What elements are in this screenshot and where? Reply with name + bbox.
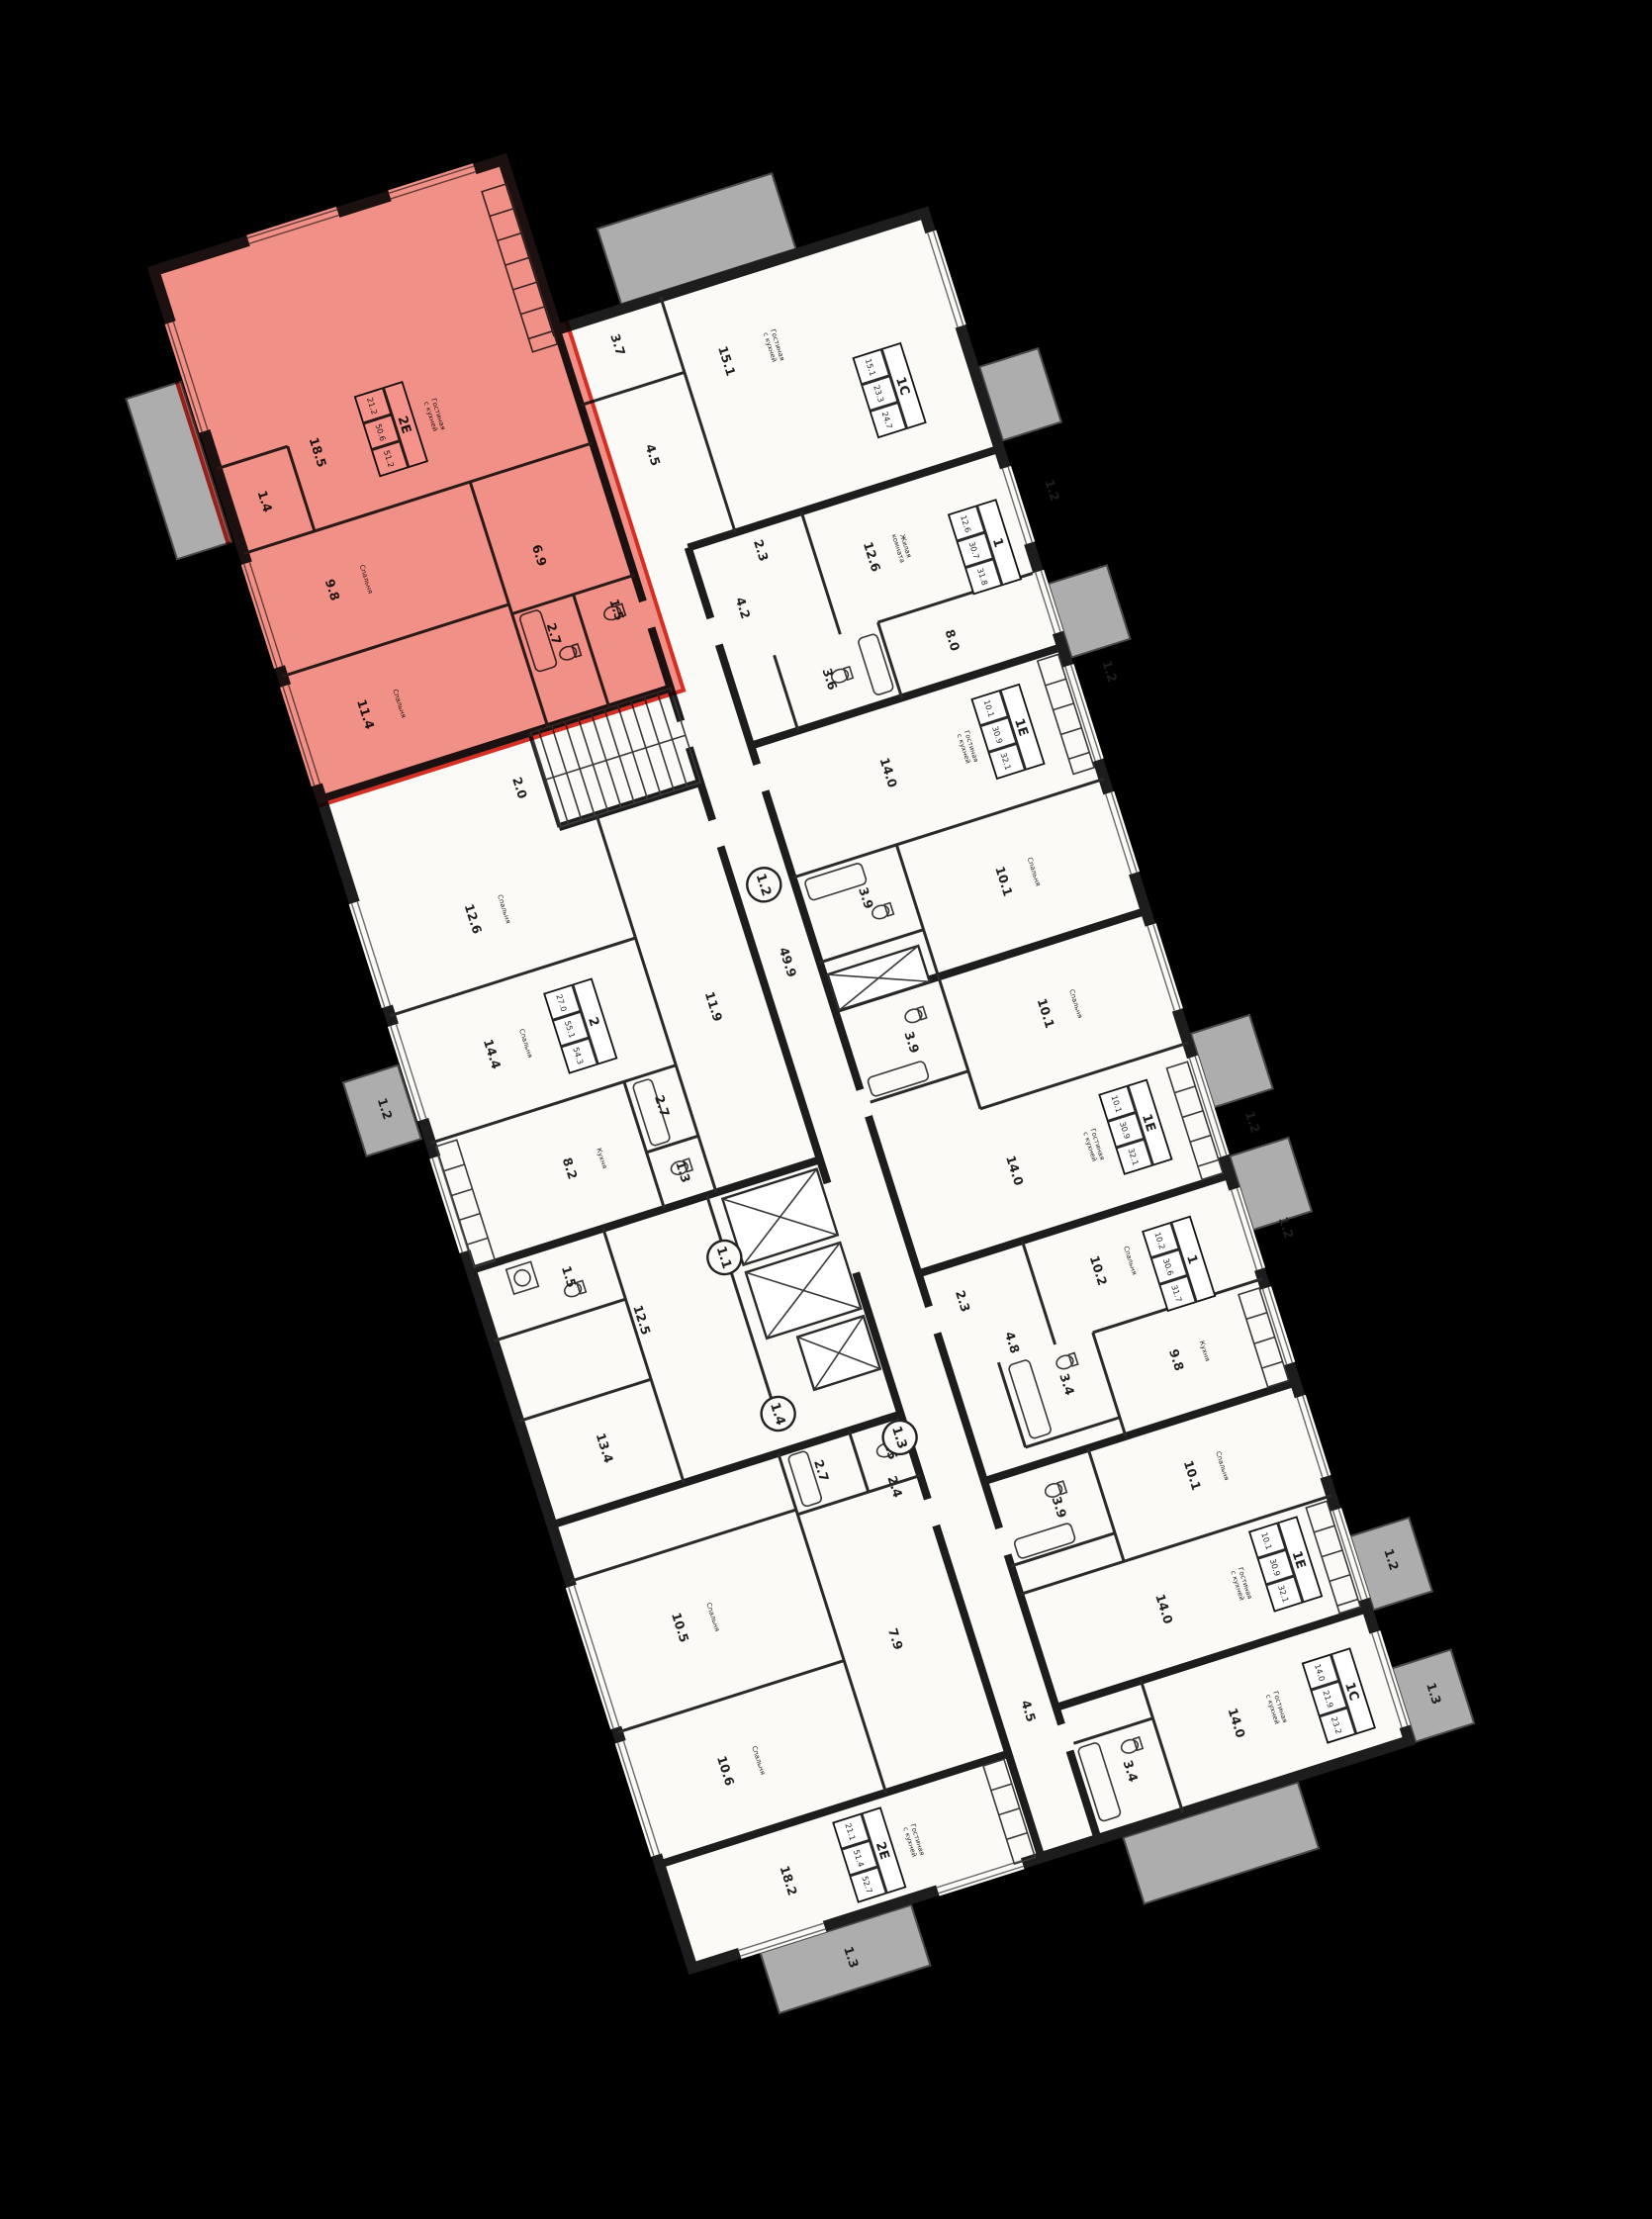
floor-plan-svg: 18.59.811.46.91.52.71.415.13.74.512.62.3…: [0, 0, 1652, 2219]
floorplan-canvas: 18.59.811.46.91.52.71.415.13.74.512.62.3…: [0, 0, 1652, 2219]
